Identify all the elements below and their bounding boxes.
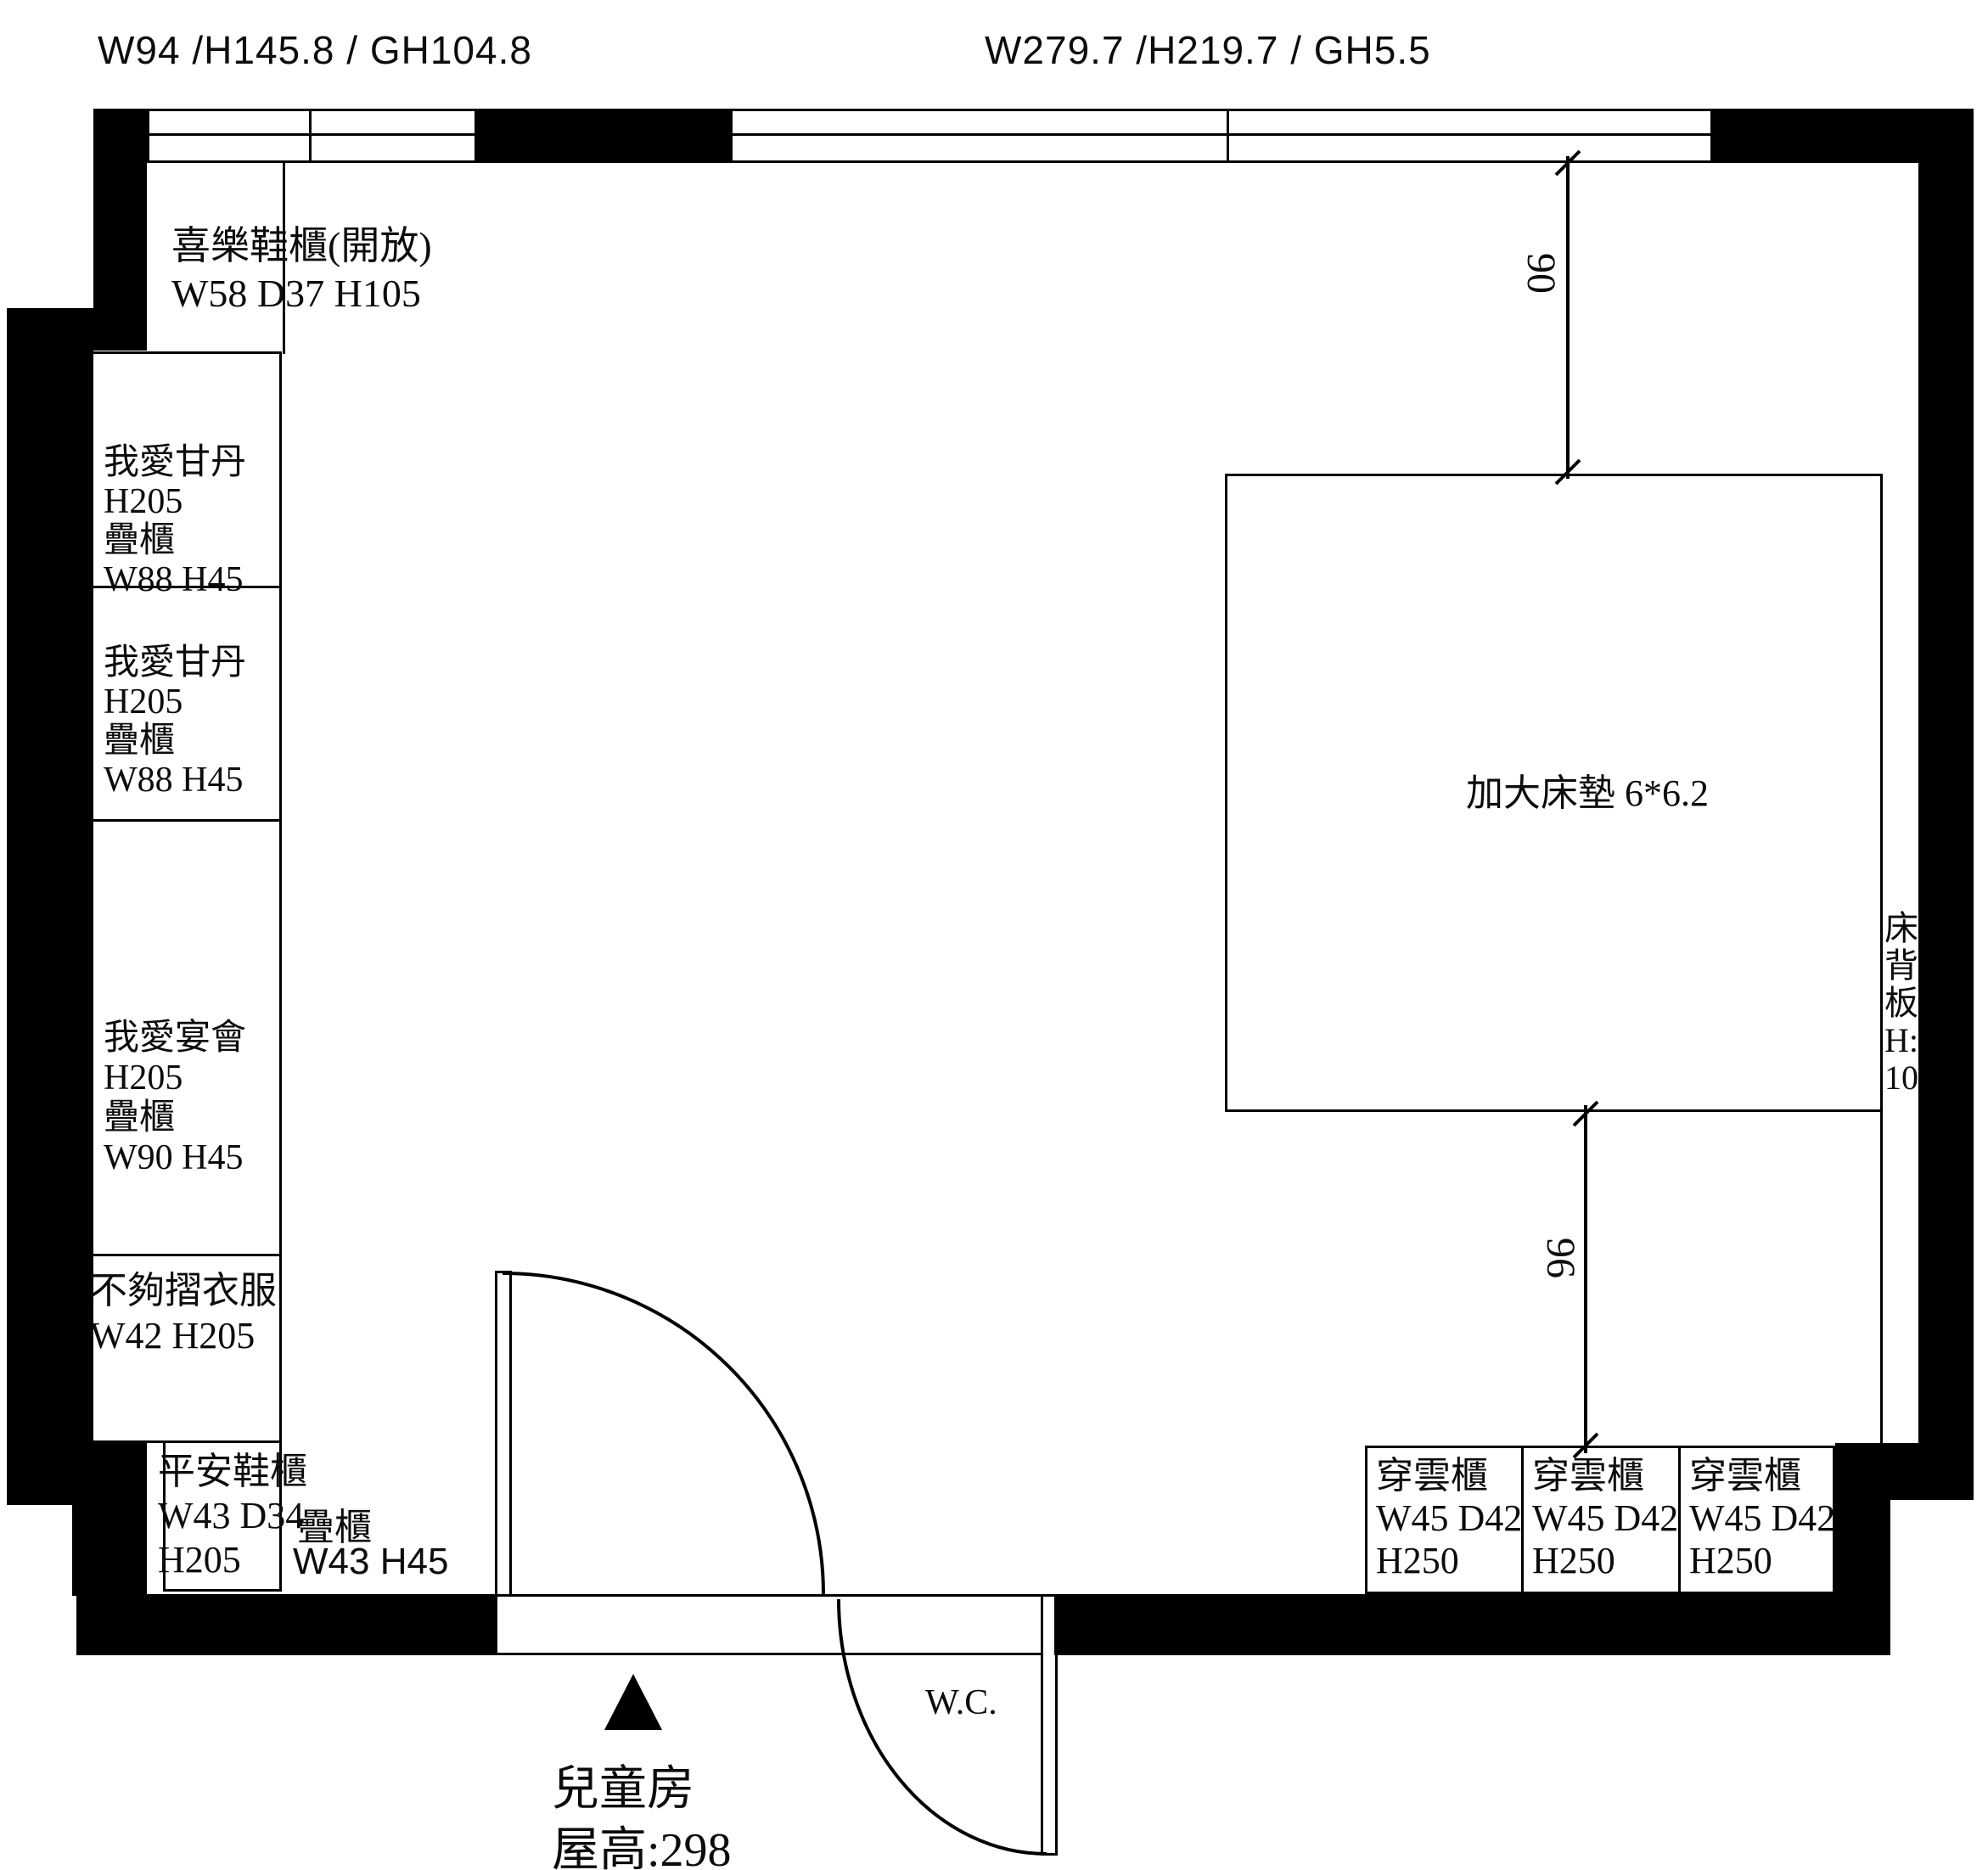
stack-cabinet-dims: W43 H45	[293, 1541, 448, 1583]
cabinet-2-dims: W88 H45	[104, 761, 246, 800]
wardrobe-box-3: 穿雲櫃 W45 D42.5 H250	[1678, 1446, 1835, 1594]
window-1b	[309, 109, 477, 163]
wall-bottom-right	[1054, 1594, 1890, 1655]
cabinet-3-name: 我愛宴會	[104, 1019, 246, 1059]
cabinet-1-name: 我愛甘丹	[104, 443, 246, 482]
cabinet-2-h: H205	[104, 682, 246, 722]
cabinet-4-name: 不夠摺衣服	[90, 1268, 277, 1313]
shoe-cabinet-open-name: 喜樂鞋櫃(開放)	[171, 222, 432, 270]
dimension-label-90: 90	[1518, 253, 1564, 294]
cabinet-2-label: 我愛甘丹 H205 疊櫃 W88 H45	[104, 643, 246, 800]
floor-plan: W94 /H145.8 / GH104.8 W279.7 /H219.7 / G…	[0, 0, 1988, 1870]
wall-right-lower	[1835, 1443, 1890, 1655]
bed-label: 加大床墊 6*6.2	[1466, 762, 1709, 817]
cabinet-1-label: 我愛甘丹 H205 疊櫃 W88 H45	[104, 443, 246, 599]
wc-label: W.C.	[925, 1682, 997, 1723]
cabinet-3-h: H205	[104, 1059, 246, 1098]
bottom-threshold	[495, 1594, 1057, 1655]
room-door-leaf	[495, 1271, 512, 1597]
wall-left	[7, 308, 93, 1505]
wardrobe-box-1: 穿雲櫃 W45 D42.5 H250	[1365, 1446, 1524, 1594]
cabinet-3-dims: W90 H45	[104, 1138, 246, 1178]
entry-marker-triangle	[604, 1674, 662, 1730]
cabinet-5-h: H205	[158, 1538, 307, 1582]
wardrobe-3-dims: W45 D42.5	[1689, 1497, 1835, 1540]
cabinet-4-dims: W42 H205	[90, 1313, 277, 1358]
wardrobe-3-height: H250	[1689, 1540, 1835, 1582]
window-1a	[147, 109, 312, 163]
cabinet-2-name: 我愛甘丹	[104, 643, 246, 682]
cabinet-3-type: 疊櫃	[104, 1098, 246, 1138]
cabinet-2-type: 疊櫃	[104, 722, 246, 761]
room-name: 兒童房	[552, 1750, 694, 1819]
cabinet-5-name: 平安鞋櫃	[158, 1450, 307, 1494]
shoe-cabinet-open-label: 喜樂鞋櫃(開放) W58 D37 H105	[171, 222, 432, 317]
window-2	[730, 109, 1229, 163]
cabinet-1-h: H205	[104, 482, 246, 521]
dimension-line-96	[1574, 1102, 1598, 1457]
wall-left-lower-jut	[72, 1443, 147, 1596]
window-spec-label-left: W94 /H145.8 / GH104.8	[98, 27, 532, 73]
window-3	[1227, 109, 1713, 163]
dimension-label-96: 96	[1537, 1238, 1584, 1278]
wall-left-step	[93, 308, 147, 351]
window-spec-label-center: W279.7 /H219.7 / GH5.5	[985, 27, 1431, 73]
room-door-arc	[503, 1273, 823, 1594]
wall-bottom-left	[76, 1594, 495, 1655]
wall-top-left-strip	[93, 109, 147, 312]
wall-top-mid-block	[475, 109, 730, 163]
cabinet-5-dims: W43 D34	[158, 1494, 307, 1538]
wardrobe-box-2: 穿雲櫃 W45 D42.5 H250	[1521, 1446, 1681, 1594]
cabinet-4-label: 不夠摺衣服 W42 H205	[90, 1268, 277, 1358]
dimension-line-90	[1556, 151, 1580, 484]
cabinet-1-type: 疊櫃	[104, 521, 246, 560]
shoe-cabinet-open-dims: W58 D37 H105	[171, 270, 432, 317]
bed-edge-extension-line	[1880, 1110, 1883, 1446]
cabinet-1-dims: W88 H45	[104, 560, 246, 599]
room-ceiling-height: 屋高:298	[552, 1811, 732, 1870]
wardrobe-3-name: 穿雲櫃	[1689, 1455, 1835, 1497]
cabinet-5-label: 平安鞋櫃 W43 D34 H205	[158, 1450, 307, 1582]
wall-right-upper	[1918, 109, 1974, 1500]
cabinet-3-label: 我愛宴會 H205 疊櫃 W90 H45	[104, 1019, 246, 1178]
